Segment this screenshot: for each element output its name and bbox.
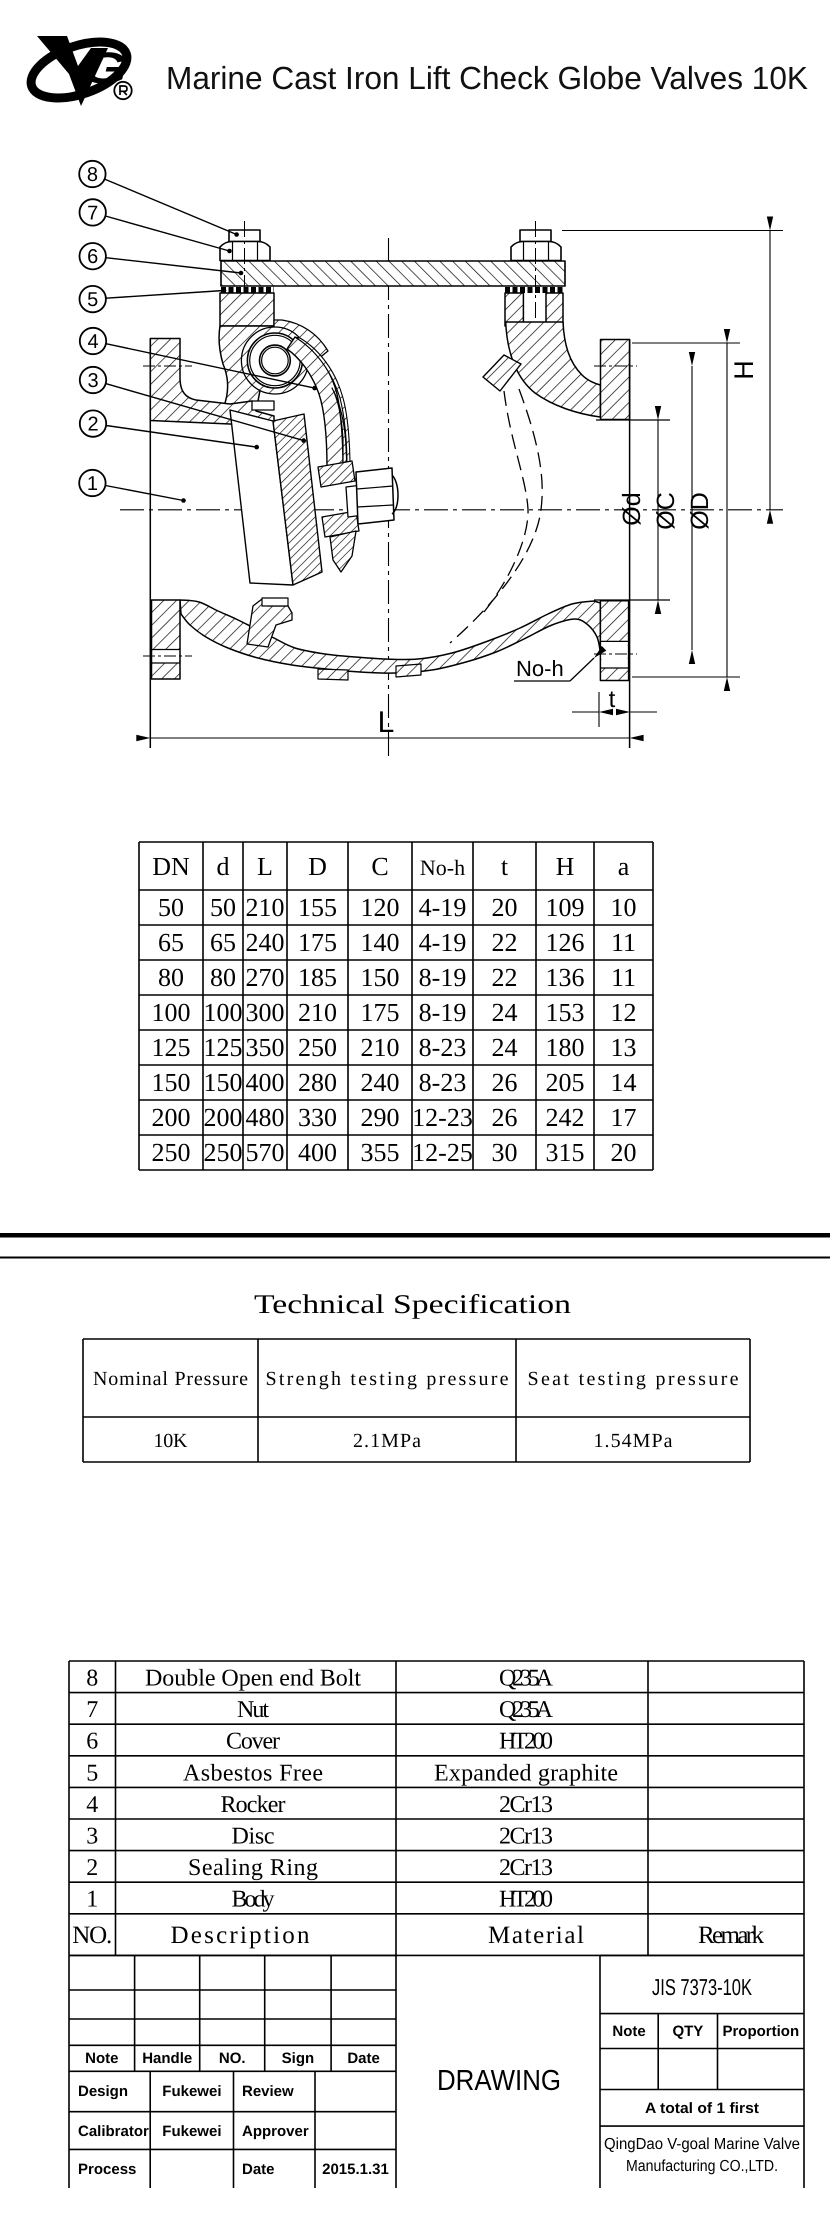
svg-text:22: 22 <box>492 928 518 957</box>
svg-text:20: 20 <box>492 893 518 922</box>
svg-text:Sealing Ring: Sealing Ring <box>188 1855 318 1881</box>
svg-text:Proportion: Proportion <box>722 2023 799 2040</box>
svg-text:t: t <box>501 852 509 881</box>
svg-text:22: 22 <box>492 963 518 992</box>
svg-text:3: 3 <box>86 1824 98 1850</box>
svg-text:4-19: 4-19 <box>419 928 467 957</box>
svg-text:DN: DN <box>152 852 190 881</box>
svg-text:205: 205 <box>546 1068 585 1097</box>
svg-text:155: 155 <box>298 893 337 922</box>
svg-text:1: 1 <box>86 1887 98 1913</box>
svg-text:24: 24 <box>492 1033 518 1062</box>
svg-text:210: 210 <box>298 998 337 1027</box>
svg-text:11: 11 <box>611 963 636 992</box>
svg-text:2015.1.31: 2015.1.31 <box>322 2161 389 2178</box>
svg-text:12: 12 <box>611 998 637 1027</box>
svg-text:Ød: Ød <box>618 492 646 525</box>
svg-text:330: 330 <box>298 1103 337 1132</box>
svg-text:140: 140 <box>361 928 400 957</box>
svg-text:4-19: 4-19 <box>419 893 467 922</box>
svg-text:3: 3 <box>87 370 98 392</box>
svg-text:4: 4 <box>86 1792 98 1818</box>
svg-text:7: 7 <box>86 1697 98 1723</box>
svg-text:1.54MPa: 1.54MPa <box>594 1430 673 1452</box>
svg-text:2.1MPa: 2.1MPa <box>353 1430 421 1452</box>
svg-text:355: 355 <box>361 1138 400 1167</box>
svg-text:Strengh testing pressure: Strengh testing pressure <box>266 1368 509 1390</box>
svg-text:Material: Material <box>488 1922 584 1949</box>
svg-text:2Cr13: 2Cr13 <box>499 1792 553 1818</box>
svg-text:270: 270 <box>246 963 285 992</box>
svg-text:350: 350 <box>246 1033 285 1062</box>
svg-text:Nut: Nut <box>237 1697 269 1723</box>
svg-text:6: 6 <box>87 246 98 268</box>
svg-text:Expanded graphite: Expanded graphite <box>434 1760 618 1786</box>
svg-text:Double Open end Bolt: Double Open end Bolt <box>145 1666 361 1692</box>
svg-text:175: 175 <box>298 928 337 957</box>
svg-text:125: 125 <box>204 1033 243 1062</box>
svg-text:a: a <box>618 852 630 881</box>
svg-text:NO.: NO. <box>219 2050 246 2067</box>
svg-text:185: 185 <box>298 963 337 992</box>
svg-text:17: 17 <box>611 1103 637 1132</box>
svg-text:Review: Review <box>242 2083 294 2100</box>
svg-text:HT200: HT200 <box>499 1729 553 1755</box>
svg-text:Sign: Sign <box>282 2050 315 2067</box>
svg-text:150: 150 <box>152 1068 191 1097</box>
svg-text:2: 2 <box>86 1855 98 1881</box>
svg-text:175: 175 <box>361 998 400 1027</box>
svg-text:Description: Description <box>171 1922 311 1949</box>
svg-text:120: 120 <box>361 893 400 922</box>
svg-text:Asbestos Free: Asbestos Free <box>183 1760 323 1786</box>
svg-text:NO.: NO. <box>72 1922 112 1949</box>
svg-text:400: 400 <box>298 1138 337 1167</box>
svg-text:12-25: 12-25 <box>412 1138 473 1167</box>
svg-text:4: 4 <box>87 331 98 353</box>
svg-text:280: 280 <box>298 1068 337 1097</box>
svg-text:Process: Process <box>78 2161 136 2178</box>
svg-text:200: 200 <box>204 1103 243 1132</box>
svg-text:136: 136 <box>546 963 585 992</box>
svg-text:126: 126 <box>546 928 585 957</box>
svg-text:26: 26 <box>492 1103 518 1132</box>
svg-text:Design: Design <box>78 2083 128 2100</box>
svg-text:12-23: 12-23 <box>412 1103 473 1132</box>
svg-text:200: 200 <box>152 1103 191 1132</box>
svg-text:No-h: No-h <box>516 656 564 681</box>
svg-text:Marine Cast Iron Lift Check Gl: Marine Cast Iron Lift Check Globe Valves… <box>166 60 808 96</box>
svg-text:Date: Date <box>242 2161 275 2178</box>
svg-text:13: 13 <box>611 1033 637 1062</box>
svg-text:Body: Body <box>232 1887 275 1913</box>
svg-text:No-h: No-h <box>420 855 465 880</box>
svg-text:2Cr13: 2Cr13 <box>499 1824 553 1850</box>
svg-text:Fukewei: Fukewei <box>162 2123 221 2140</box>
svg-text:Handle: Handle <box>142 2050 192 2067</box>
svg-text:HT200: HT200 <box>499 1887 553 1913</box>
svg-text:80: 80 <box>210 963 236 992</box>
svg-text:180: 180 <box>546 1033 585 1062</box>
svg-text:Calibrator: Calibrator <box>78 2123 149 2140</box>
svg-text:30: 30 <box>492 1138 518 1167</box>
svg-text:240: 240 <box>361 1068 400 1097</box>
svg-text:150: 150 <box>204 1068 243 1097</box>
svg-text:11: 11 <box>611 928 636 957</box>
svg-text:400: 400 <box>246 1068 285 1097</box>
svg-text:14: 14 <box>611 1068 637 1097</box>
svg-text:5: 5 <box>87 289 98 311</box>
svg-text:d: d <box>217 852 230 881</box>
svg-text:L: L <box>378 706 395 739</box>
svg-text:H: H <box>556 852 575 881</box>
svg-text:C: C <box>371 852 388 881</box>
svg-text:150: 150 <box>361 963 400 992</box>
svg-text:DRAWING: DRAWING <box>437 2065 561 2097</box>
svg-text:Note: Note <box>612 2023 645 2040</box>
svg-text:Q235A: Q235A <box>499 1666 554 1692</box>
svg-text:Note: Note <box>85 2050 118 2067</box>
svg-text:80: 80 <box>158 963 184 992</box>
svg-text:t: t <box>609 686 616 713</box>
svg-text:JIS 7373-10K: JIS 7373-10K <box>652 1974 752 2000</box>
svg-text:Nominal Pressure: Nominal Pressure <box>93 1368 248 1390</box>
svg-text:250: 250 <box>152 1138 191 1167</box>
svg-text:20: 20 <box>611 1138 637 1167</box>
svg-text:10: 10 <box>611 893 637 922</box>
svg-text:2: 2 <box>87 414 98 436</box>
svg-text:Disc: Disc <box>232 1824 275 1850</box>
svg-text:QTY: QTY <box>672 2023 703 2040</box>
svg-text:8-19: 8-19 <box>419 998 467 1027</box>
svg-text:L: L <box>257 852 273 881</box>
svg-text:250: 250 <box>204 1138 243 1167</box>
svg-text:210: 210 <box>361 1033 400 1062</box>
svg-text:50: 50 <box>158 893 184 922</box>
svg-text:Manufacturing CO.,LTD.: Manufacturing CO.,LTD. <box>626 2158 778 2175</box>
svg-text:7: 7 <box>87 202 98 224</box>
svg-text:50: 50 <box>210 893 236 922</box>
svg-text:24: 24 <box>492 998 518 1027</box>
svg-text:Rocker: Rocker <box>221 1792 286 1818</box>
svg-text:8-23: 8-23 <box>419 1068 467 1097</box>
svg-text:100: 100 <box>204 998 243 1027</box>
svg-text:ØD: ØD <box>686 492 714 530</box>
svg-text:D: D <box>308 852 327 881</box>
svg-text:Fukewei: Fukewei <box>162 2083 221 2100</box>
svg-text:210: 210 <box>246 893 285 922</box>
svg-text:6: 6 <box>86 1729 98 1755</box>
svg-text:Remark: Remark <box>698 1922 765 1949</box>
svg-text:1: 1 <box>87 473 98 495</box>
svg-text:65: 65 <box>210 928 236 957</box>
svg-text:5: 5 <box>86 1760 98 1786</box>
svg-text:2Cr13: 2Cr13 <box>499 1855 553 1881</box>
svg-text:109: 109 <box>546 893 585 922</box>
svg-text:26: 26 <box>492 1068 518 1097</box>
svg-text:250: 250 <box>298 1033 337 1062</box>
svg-text:10K: 10K <box>154 1430 189 1452</box>
svg-text:153: 153 <box>546 998 585 1027</box>
svg-text:570: 570 <box>246 1138 285 1167</box>
svg-text:315: 315 <box>546 1138 585 1167</box>
svg-text:242: 242 <box>546 1103 585 1132</box>
svg-text:8: 8 <box>87 164 98 186</box>
svg-text:65: 65 <box>158 928 184 957</box>
svg-text:240: 240 <box>246 928 285 957</box>
svg-text:8-23: 8-23 <box>419 1033 467 1062</box>
svg-text:100: 100 <box>152 998 191 1027</box>
svg-text:Approver: Approver <box>242 2123 309 2140</box>
svg-text:480: 480 <box>246 1103 285 1132</box>
svg-text:A total of 1 first: A total of 1 first <box>645 2100 759 2117</box>
svg-text:Date: Date <box>347 2050 380 2067</box>
svg-text:8-19: 8-19 <box>419 963 467 992</box>
svg-text:ØC: ØC <box>652 492 680 530</box>
svg-text:300: 300 <box>246 998 285 1027</box>
svg-text:H: H <box>729 360 759 380</box>
svg-text:Q235A: Q235A <box>499 1697 554 1723</box>
svg-text:290: 290 <box>361 1103 400 1132</box>
svg-text:8: 8 <box>86 1666 98 1692</box>
svg-text:Technical Specification: Technical Specification <box>254 1289 572 1319</box>
svg-text:125: 125 <box>152 1033 191 1062</box>
svg-text:QingDao V-goal Marine Valve: QingDao V-goal Marine Valve <box>604 2136 800 2153</box>
svg-text:Cover: Cover <box>226 1729 280 1755</box>
